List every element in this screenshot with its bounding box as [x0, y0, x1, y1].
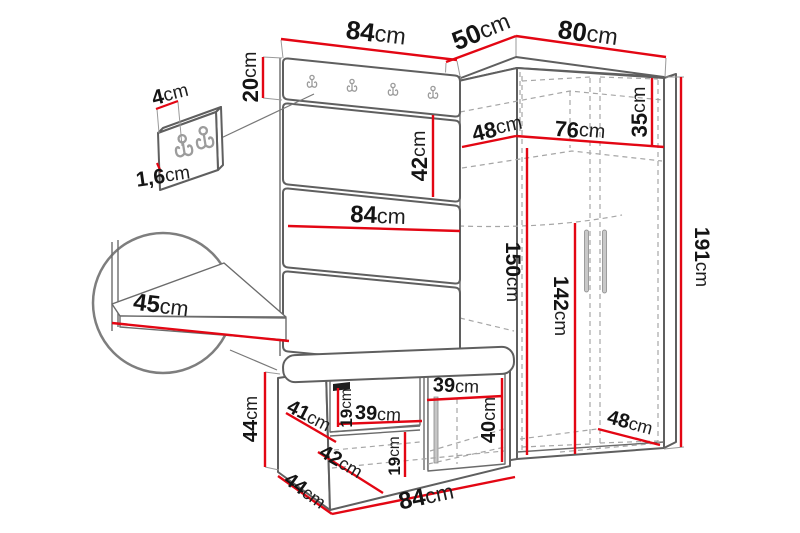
furniture-dimension-diagram: 84cm 50cm 80cm 20cm 4cm 1,6cm 42cm 84cm … — [0, 0, 800, 533]
bench-door-handle-icon — [434, 397, 438, 463]
dim-wardrobe-height-label: 191cm — [691, 227, 714, 287]
wardrobe-door-handle-left-icon — [585, 230, 589, 292]
shelf-detail-inset — [93, 233, 289, 373]
diagram-canvas: 84cm 50cm 80cm 20cm 4cm 1,6cm 42cm 84cm … — [0, 0, 800, 533]
dim-shelf-width-label: 39cm — [354, 402, 401, 426]
dim-panel-width-mid-label: 84cm — [350, 201, 406, 230]
dim-inner-height-label: 150cm — [502, 242, 525, 302]
dim-door-height-label: 40cm — [478, 397, 500, 443]
dim-inner-width-label: 76cm — [554, 115, 607, 144]
dim-panel-width-top-label: 84cm — [344, 14, 407, 51]
dim-flap-height-label: 19cm — [337, 388, 356, 427]
wardrobe-door-handle-right-icon — [603, 230, 607, 293]
dim-door-width-label: 39cm — [433, 374, 480, 398]
callout-line — [230, 350, 277, 370]
dim-lower-height-label: 19cm — [385, 436, 404, 475]
dim-hanging-height-label: 142cm — [550, 276, 573, 336]
dim-bench-height-label: 44cm — [240, 396, 262, 442]
dim-rail-height-label: 20cm — [238, 52, 263, 103]
wardrobe-right-face — [664, 74, 676, 448]
dim-panel-section-height-label: 42cm — [407, 131, 432, 182]
dim-hook-panel-thickness-label: 1,6cm — [134, 161, 191, 191]
dim-top-shelf-height-label: 35cm — [627, 87, 652, 138]
